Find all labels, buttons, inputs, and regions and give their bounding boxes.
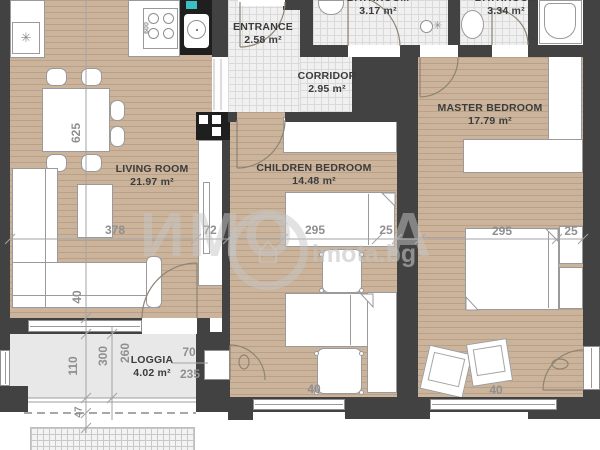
- dining-chair: [81, 68, 102, 86]
- entrance-floor: [228, 0, 300, 112]
- armchair-cushion: [428, 352, 466, 387]
- room-name: LOGGIA: [131, 354, 174, 367]
- shower-mixer-icon: [420, 20, 433, 33]
- wall-children-top-a: [228, 112, 237, 122]
- wall-entrance-bath1: [300, 0, 313, 57]
- dining-chair: [110, 126, 125, 147]
- glazing-line: [432, 404, 555, 405]
- room-area: 14.48 m²: [256, 175, 371, 188]
- faucet-icon: [186, 1, 197, 9]
- panel-cell: [212, 127, 221, 136]
- panel-cell: [199, 115, 208, 124]
- dim-47: 47: [74, 406, 85, 417]
- glazing-line: [30, 326, 140, 327]
- wall-under-tub: [528, 45, 583, 57]
- panel-cell: [212, 115, 221, 124]
- wall-children-master: [397, 57, 418, 397]
- wall-entrance-top-stub: [283, 0, 300, 10]
- master-balcony-door: [583, 346, 600, 390]
- loggia-parapet: [28, 398, 196, 402]
- children-bed-1: [285, 192, 395, 247]
- pillow-line: [548, 230, 549, 308]
- wall-children-top-b: [285, 112, 397, 122]
- armchair-cushion: [473, 345, 506, 376]
- bathtub-inner: [544, 3, 576, 39]
- corridor-label: CORRIDOR 2.95 m²: [298, 70, 357, 96]
- shaft-panel: [196, 112, 230, 140]
- chair-wheel-icon: [319, 288, 324, 293]
- dining-chair: [110, 100, 125, 121]
- desk-chair: [317, 348, 362, 394]
- wall-under-bath1-b: [400, 45, 420, 57]
- bathroom-1-label: BATHROOM 3.17 m²: [347, 0, 410, 18]
- desk-chair: [322, 249, 362, 293]
- burner-icon: [163, 28, 174, 39]
- children-window: [253, 399, 345, 410]
- terrace-paving: [30, 427, 195, 450]
- bath1-door-opening: [348, 45, 400, 57]
- wall-left-bottom-pier: [0, 386, 28, 412]
- room-name: LIVING ROOM: [116, 163, 189, 176]
- room-area: 17.79 m²: [438, 115, 543, 128]
- bathtub: [539, 0, 582, 44]
- chair-wheel-icon: [314, 351, 319, 356]
- wall-bottom-pier-b: [345, 397, 430, 419]
- room-name: CHILDREN BEDROOM: [256, 162, 371, 175]
- room-name: MASTER BEDROOM: [438, 102, 543, 115]
- chair-wheel-icon: [359, 390, 364, 395]
- chair-wheel-icon: [319, 252, 324, 257]
- entrance-label: ENTRANCE 2.58 m²: [233, 21, 293, 47]
- room-area: 21.97 m²: [116, 176, 189, 189]
- room-area: 2.58 m²: [233, 34, 293, 47]
- pillow-line: [368, 194, 369, 245]
- nightstand: [559, 267, 583, 309]
- glazing-line: [591, 348, 592, 388]
- dim-70: 70: [182, 345, 195, 359]
- children-bed-2: [285, 293, 373, 347]
- tv-cabinet: [198, 140, 223, 286]
- wall-living-children: [222, 140, 230, 332]
- master-bedroom-label: MASTER BEDROOM 17.79 m²: [438, 102, 543, 128]
- loggia-left-window: [0, 350, 10, 386]
- dim-295-children: 295: [305, 223, 325, 237]
- armchair: [466, 338, 513, 387]
- dim-25-master: 25: [564, 224, 577, 238]
- master-window: [430, 399, 557, 410]
- loggia-children-door-leaf: [204, 350, 230, 380]
- wall-under-bath1-a: [313, 45, 348, 57]
- wall-under-bath2-a: [458, 45, 492, 57]
- dim-40-children: 40: [307, 382, 320, 396]
- sofa-cushion-line: [12, 262, 160, 296]
- chair-wheel-icon: [359, 288, 364, 293]
- glazing-line: [5, 352, 6, 384]
- burner-icon: [163, 13, 174, 24]
- wall-bottom-pier-a: [228, 397, 253, 420]
- room-area: 3.34 m²: [475, 5, 538, 18]
- dim-25-children: 25: [379, 223, 392, 237]
- master-door-opening: [420, 45, 458, 57]
- master-dresser: [463, 139, 583, 173]
- dim-72: 72: [203, 223, 216, 237]
- room-area: 3.17 m²: [347, 5, 410, 18]
- tv: [203, 182, 210, 254]
- living-room-label: LIVING ROOM 21.97 m²: [116, 163, 189, 189]
- floor-plan: ✳ ✳: [0, 0, 600, 450]
- master-wardrobe: [548, 55, 582, 140]
- dim-600-stove: 600: [144, 22, 151, 34]
- loggia-label: LOGGIA 4.02 m²: [131, 354, 174, 380]
- room-name: CORRIDOR: [298, 70, 357, 83]
- glazing-line: [255, 404, 343, 405]
- living-entrance-passage: [212, 57, 228, 112]
- refrigerator: ✳: [12, 22, 40, 54]
- chair-wheel-icon: [359, 252, 364, 257]
- sink-drain: [196, 29, 198, 31]
- dim-300: 300: [96, 346, 110, 366]
- shower-head-icon: ✳: [433, 19, 442, 34]
- dim-40-master: 40: [489, 383, 502, 397]
- dining-chair: [81, 154, 102, 172]
- living-loggia-window: [28, 320, 142, 332]
- children-desk: [367, 292, 397, 393]
- chair-wheel-icon: [359, 351, 364, 356]
- sofa-armrest: [146, 256, 162, 308]
- freezer-icon: ✳: [21, 30, 32, 46]
- entrance-door-opening: [238, 0, 285, 6]
- dining-chair: [46, 68, 67, 86]
- master-bed: [465, 228, 559, 310]
- room-area: 4.02 m²: [131, 367, 174, 380]
- room-name: ENTRANCE: [233, 21, 293, 34]
- dim-295-master: 295: [492, 224, 512, 238]
- wall-duct-block: [352, 48, 397, 112]
- dim-625: 625: [69, 123, 83, 143]
- children-wardrobe: [283, 117, 397, 153]
- room-area: 2.95 m²: [298, 83, 357, 96]
- bath2-door-opening: [492, 45, 528, 57]
- pillow-line: [350, 295, 351, 345]
- wall-bath1-bath2: [448, 0, 460, 48]
- dim-235: 235: [180, 367, 200, 381]
- dim-40-living: 40: [70, 290, 84, 303]
- bathroom-2-label: BATHROOM 3.34 m²: [475, 0, 538, 18]
- dim-378: 378: [105, 223, 125, 237]
- dim-110: 110: [66, 356, 80, 375]
- wall-left: [0, 0, 10, 350]
- living-loggia-door-opening: [142, 318, 197, 334]
- wall-kitchen-entrance: [212, 0, 228, 57]
- children-bedroom-label: CHILDREN BEDROOM 14.48 m²: [256, 162, 371, 188]
- sink-unit: [180, 0, 212, 55]
